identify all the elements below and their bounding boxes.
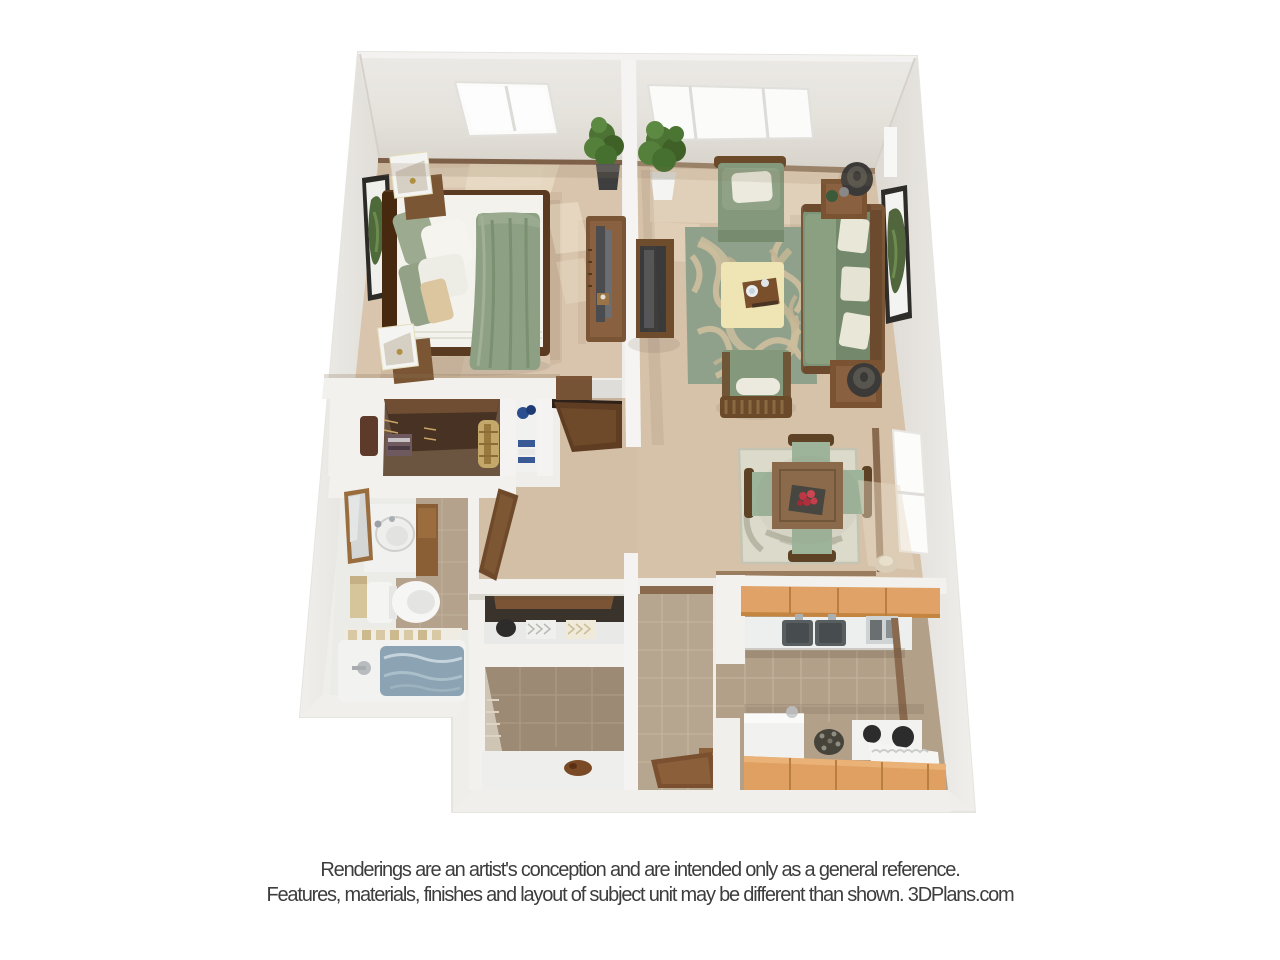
svg-text:Renderings are an artist's con: Renderings are an artist's conception an… — [320, 859, 959, 881]
svg-text:Features, materials, finishes: Features, materials, finishes and layout… — [266, 884, 1014, 906]
